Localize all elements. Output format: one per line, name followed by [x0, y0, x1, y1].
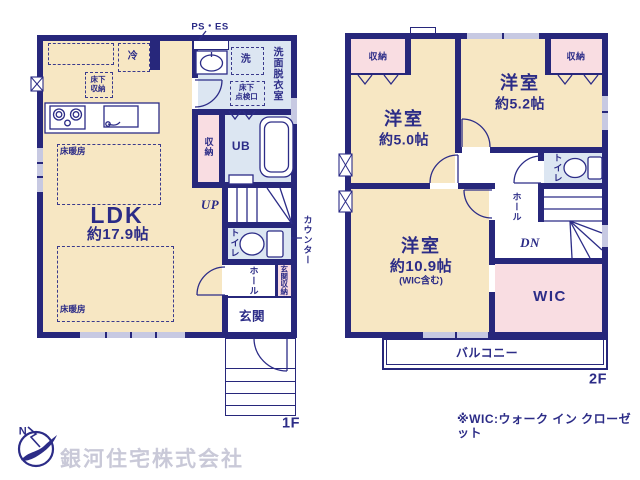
toilet-1f-label: トイレ — [230, 228, 239, 258]
door-arc-ldk-hall — [197, 267, 225, 295]
floor-plan: PS・ES 冷 洗 洗面脱衣室 床下 点検口 床下 収納 床暖房 床暖房 収納 … — [0, 0, 640, 480]
balcony-label: バルコニー — [456, 346, 518, 360]
floor1-label: 1F — [282, 415, 300, 432]
entrance-storage-label: 玄関収納 — [280, 265, 288, 295]
underfloor-storage-label: 床下 収納 — [91, 75, 106, 93]
door-arc-bedroom-5-0 — [430, 155, 458, 183]
door-arc-bedroom-5-2 — [462, 119, 490, 147]
wic-label: WIC — [533, 288, 567, 306]
door-swing-marks-ub — [229, 111, 255, 119]
washer-label: 洗 — [241, 54, 252, 66]
wic-note: ※WIC:ウォーク イン クローゼット — [457, 412, 640, 441]
storage-1f-label: 収納 — [204, 137, 213, 157]
door-arc-washroom — [195, 80, 222, 107]
stairs-1f — [237, 188, 292, 224]
bath-step — [229, 175, 253, 184]
stairs-2f — [544, 197, 602, 258]
ps-es-label: PS・ES — [191, 21, 228, 32]
washbasin-icon — [196, 51, 227, 74]
company-name: 銀河住宅株式会社 — [60, 443, 244, 473]
sink-icon — [104, 106, 138, 127]
compass-north-label: N — [19, 425, 27, 438]
bedroom-5-0-label: 洋室 — [384, 109, 424, 131]
closet-right-2f-label: 収納 — [566, 52, 585, 63]
door-arc-bedroom-10-9 — [464, 190, 492, 218]
floor2-label: 2F — [589, 371, 607, 388]
door-arc-entrance — [254, 338, 287, 371]
bedroom-5-2-label: 洋室 — [500, 73, 540, 95]
ldk-area-label: 約17.9帖 — [87, 226, 149, 244]
bathtub-icon — [260, 117, 293, 177]
toilet-fixture-1f — [240, 231, 283, 257]
bedroom-5-2-area: 約5.2帖 — [495, 96, 545, 113]
hall-2f-label: ホール — [512, 192, 521, 222]
bedroom-5-0-area: 約5.0帖 — [379, 132, 429, 149]
toilet-fixture-2f — [564, 157, 602, 179]
unit-bath-label: UB — [232, 139, 250, 153]
bedroom-10-9-area: 約10.9帖 — [390, 258, 452, 276]
counter-label: カウンター — [303, 215, 312, 265]
entrance-label: 玄関 — [239, 310, 265, 325]
casement-window-2f-upper — [339, 154, 352, 176]
floor-heating-top-label: 床暖房 — [60, 146, 86, 156]
door-arc-toilet-2f — [514, 156, 541, 183]
stove-icon — [50, 106, 85, 129]
up-label: UP — [201, 197, 219, 213]
casement-window-2f-lower — [339, 191, 352, 212]
casement-window-1f — [31, 77, 43, 91]
bedroom-10-9-note: (WIC含む) — [399, 275, 443, 286]
underfloor-hatch-label: 床下 点検口 — [235, 83, 258, 101]
hall-1f-label: ホール — [249, 266, 258, 296]
door-swing-marks-closets — [358, 75, 598, 84]
floor-heating-bottom-label: 床暖房 — [60, 304, 86, 314]
fridge-label: 冷 — [128, 51, 139, 63]
toilet-2f-label: トイレ — [553, 153, 562, 183]
bedroom-10-9-label: 洋室 — [401, 236, 441, 258]
washroom-label: 洗面脱衣室 — [271, 47, 281, 102]
dn-label: DN — [520, 235, 540, 251]
closet-left-2f-label: 収納 — [368, 52, 387, 63]
